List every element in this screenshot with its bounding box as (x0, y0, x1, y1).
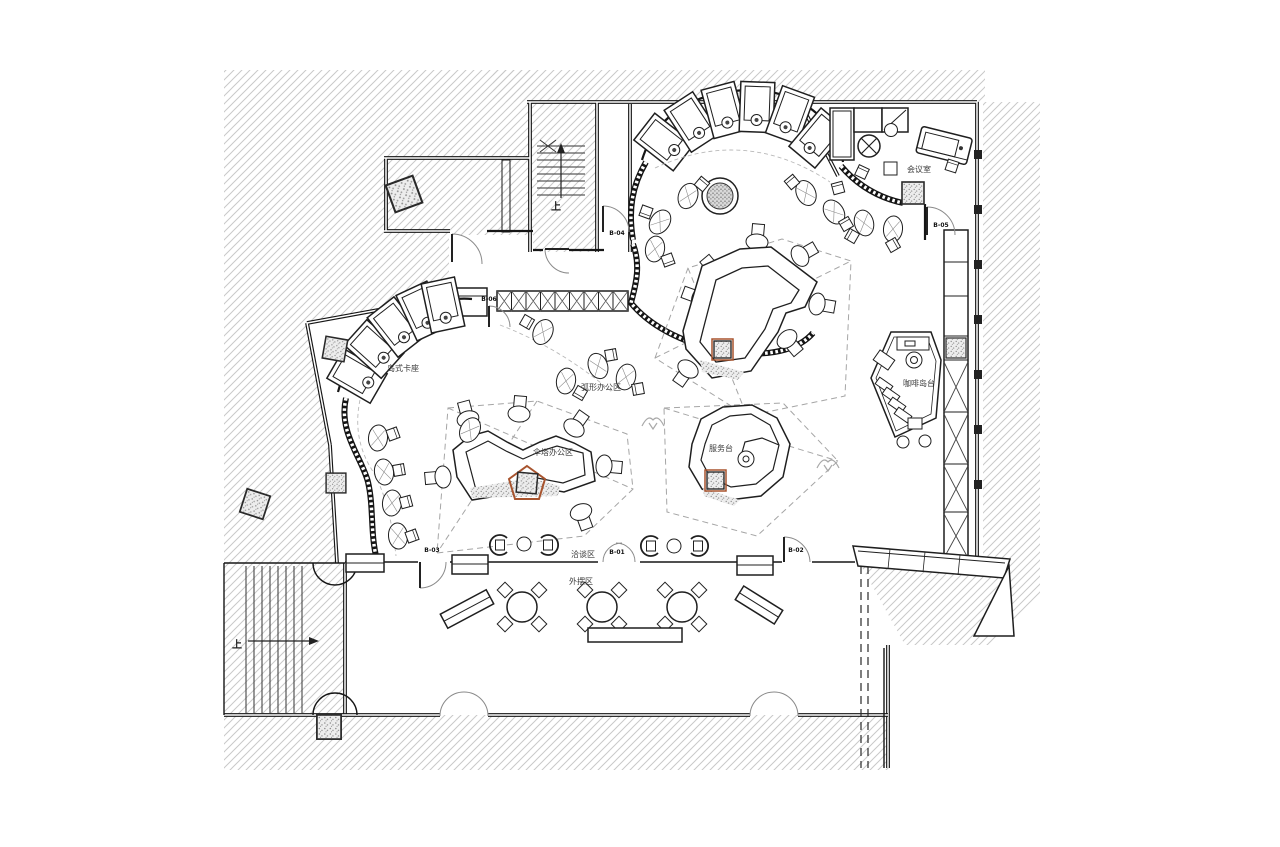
outdoor-label: 外摆区 (569, 576, 593, 586)
meeting-room-label: 会议室 (907, 164, 931, 174)
door-b02-label: B-02 (788, 547, 803, 554)
door-b06-label: B-06 (481, 296, 496, 303)
wall-cabinet-strip (944, 230, 968, 560)
service-desk-label: 服务台 (709, 443, 733, 453)
coffee-island-label: 咖啡岛台 (903, 378, 935, 388)
arc-office-label: 弧形办公区 (581, 382, 621, 392)
floor-plan-page: 会议室 咖啡岛台 服务台 弧形办公区 伞塔办公区 岛式卡座 洽谈区 外摆区 上 … (0, 0, 1280, 847)
door-b05-label: B-05 (933, 222, 948, 229)
stair-up-top-label: 上 (551, 200, 561, 213)
locker-row (497, 291, 628, 311)
booth-arc-left (327, 277, 472, 560)
service-desk (664, 403, 838, 536)
door-b03-label: B-03 (424, 547, 439, 554)
outdoor-terrace (440, 582, 782, 642)
floor-plan-drawing: 会议室 咖啡岛台 服务台 弧形办公区 伞塔办公区 岛式卡座 洽谈区 外摆区 上 … (0, 0, 1280, 847)
communal-table-lower (424, 395, 633, 553)
negotiation-label: 洽谈区 (571, 549, 595, 559)
coffee-island (871, 230, 968, 560)
door-b04-label: B-04 (609, 230, 624, 237)
reception-desk (916, 126, 973, 165)
island-booth-label: 岛式卡座 (387, 363, 419, 373)
canopy-office-label: 伞塔办公区 (533, 447, 573, 457)
door-b01-label: B-01 (609, 549, 624, 556)
stair-up-bottom-label: 上 (232, 638, 242, 651)
